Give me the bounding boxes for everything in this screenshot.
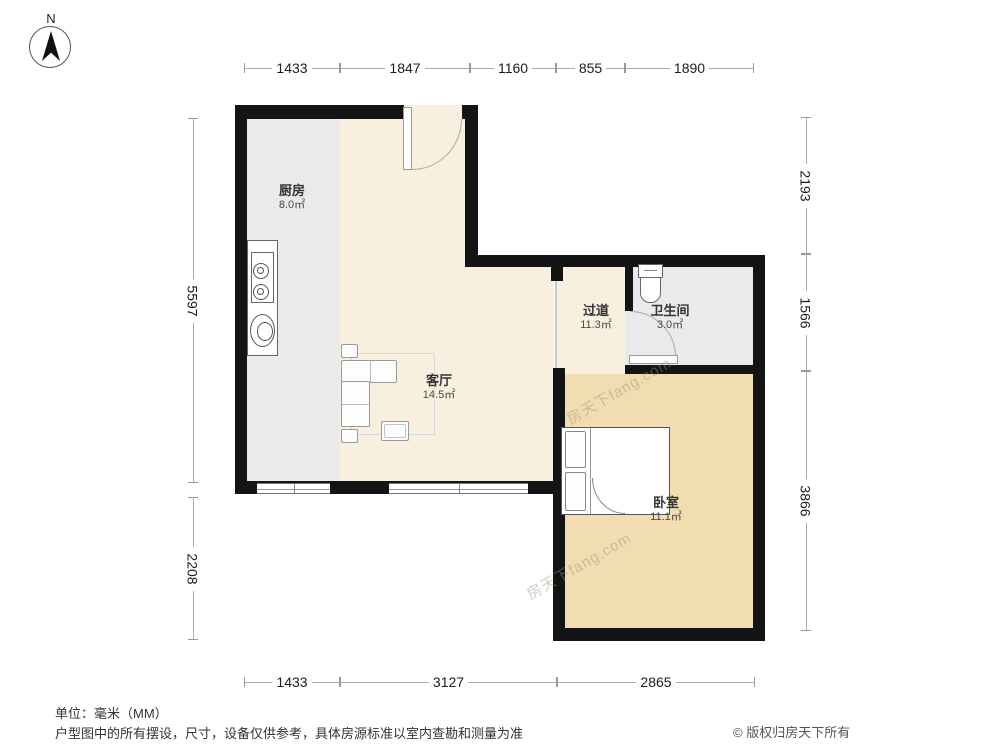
dim-bottom-1433: 1433 — [244, 674, 340, 690]
north-label: N — [40, 11, 62, 26]
dim-right-1566: 1566 — [798, 254, 814, 371]
side-table — [341, 429, 358, 443]
disclaimer: 户型图中的所有摆设，尺寸，设备仅供参考，具体房源标准以室内查勘和测量为准 — [55, 723, 523, 742]
toilet-tank — [638, 264, 663, 278]
wall-top-hallway-bath — [465, 255, 765, 267]
sofa-cushion-line — [370, 361, 371, 382]
living-hallway-boundary — [555, 281, 557, 368]
dim-bottom-3127: 3127 — [340, 674, 557, 690]
entry-door-leaf — [403, 107, 412, 170]
burner-dot-icon — [257, 267, 264, 274]
room-label-hallway: 过道 11.3㎡ — [580, 304, 612, 332]
wall-living-right — [465, 119, 478, 267]
dim-top-1890: 1890 — [625, 60, 754, 76]
window-kitchen — [257, 483, 330, 494]
wall-right — [753, 255, 765, 641]
wall-bathroom-left — [625, 267, 633, 311]
unit-note: 单位：毫米（MM） — [55, 703, 168, 722]
wall-top-right-stub — [462, 105, 478, 119]
room-label-bedroom: 卧室 11.1㎡ — [650, 496, 682, 524]
wall-bottom-bedroom — [553, 628, 765, 641]
wall-left — [235, 105, 247, 494]
wall-hallway-stub — [551, 255, 563, 281]
bed-divider-line — [590, 428, 591, 514]
dim-top-1847: 1847 — [340, 60, 470, 76]
dim-top-1433: 1433 — [244, 60, 340, 76]
window-living — [389, 483, 528, 494]
window-tick — [294, 484, 295, 493]
dim-top-855: 855 — [556, 60, 625, 76]
entry-door-gap-floor — [404, 105, 462, 119]
dim-right-3866: 3866 — [798, 371, 814, 631]
toilet-tank-line — [644, 270, 657, 271]
window-tick — [459, 484, 460, 493]
sink-basin — [257, 322, 273, 341]
burner-dot-icon — [257, 288, 264, 295]
room-label-living: 客厅 14.5㎡ — [423, 374, 455, 402]
sofa-top — [341, 360, 397, 383]
pillow — [565, 431, 586, 468]
room-label-kitchen: 厨房 8.0㎡ — [279, 184, 305, 212]
dim-top-1160: 1160 — [470, 60, 556, 76]
side-table — [341, 344, 358, 358]
pillow — [565, 472, 586, 511]
copyright: © 版权归房天下所有 — [733, 722, 850, 741]
dim-left-5597: 5597 — [185, 118, 201, 483]
dim-left-2208: 2208 — [185, 497, 201, 640]
coffee-table-top — [384, 424, 406, 438]
dim-right-2193: 2193 — [798, 117, 814, 254]
sofa-cushion-line — [342, 404, 369, 405]
living-room-floor-ext — [465, 267, 554, 481]
toilet-bowl — [640, 277, 661, 303]
room-label-bathroom: 卫生间 3.0㎡ — [650, 304, 689, 332]
floor-plan-page: N — [0, 0, 1000, 750]
wall-top-left — [235, 105, 404, 119]
dim-bottom-2865: 2865 — [557, 674, 755, 690]
